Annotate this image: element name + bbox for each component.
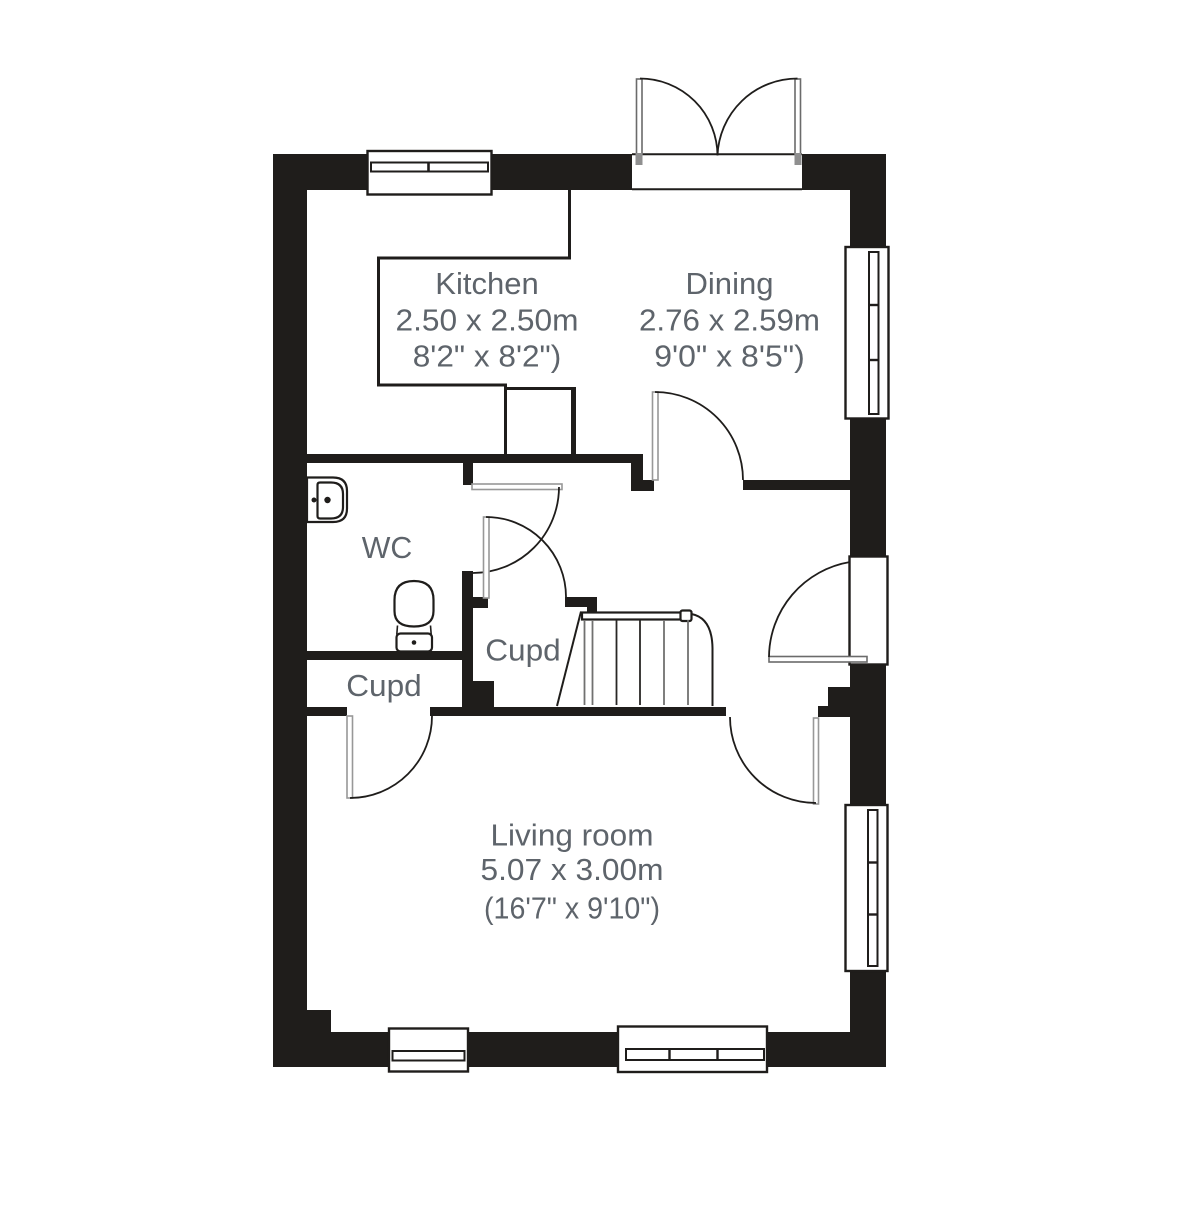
svg-text:Living room: Living room: [491, 817, 654, 852]
svg-text:WC: WC: [362, 530, 413, 565]
svg-text:9'0" x 8'5"): 9'0" x 8'5"): [654, 339, 805, 374]
svg-text:5.07 x 3.00m: 5.07 x 3.00m: [481, 852, 664, 887]
svg-text:8'2" x 8'2"): 8'2" x 8'2"): [413, 339, 562, 374]
svg-text:2.50 x 2.50m: 2.50 x 2.50m: [396, 303, 579, 338]
svg-text:Cupd: Cupd: [346, 668, 422, 703]
svg-text:2.76 x 2.59m: 2.76 x 2.59m: [639, 303, 820, 338]
svg-text:Cupd: Cupd: [485, 633, 561, 668]
svg-text:Dining: Dining: [686, 266, 774, 301]
svg-text:(16'7" x 9'10"): (16'7" x 9'10"): [484, 890, 660, 925]
svg-text:Kitchen: Kitchen: [435, 266, 539, 301]
